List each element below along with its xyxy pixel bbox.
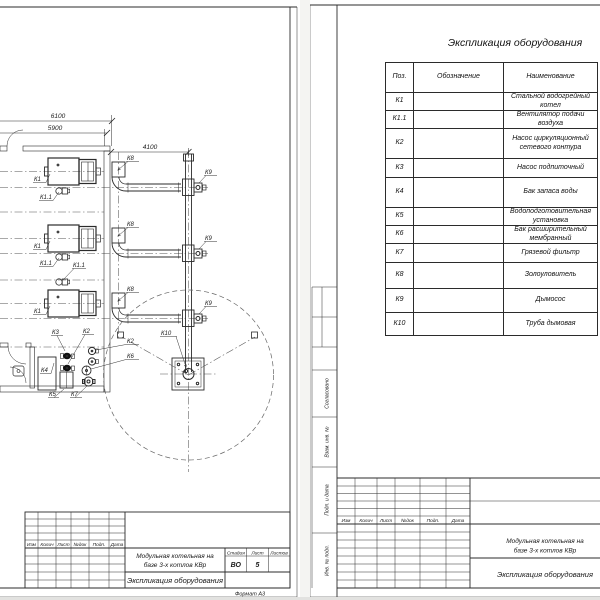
stage-label: Стадия xyxy=(227,551,245,557)
right-title-block: Изм Колич Лист №док Подп. Дата Модульная… xyxy=(337,478,600,588)
cell-designation xyxy=(414,111,504,129)
label-k6: К6 xyxy=(127,354,135,360)
cell-designation xyxy=(414,226,504,244)
table-row: К4Бак запаса воды xyxy=(386,178,598,208)
cell-designation xyxy=(414,313,504,336)
makeup-pumps-k3 xyxy=(61,353,75,371)
cell-pos: К3 xyxy=(386,159,414,178)
tb-col-ndok: №док xyxy=(401,518,415,524)
cell-name: Дымосос xyxy=(504,289,598,313)
stamp-sign-date: Подп. и дата xyxy=(325,484,331,516)
tb-col-data: Дата xyxy=(451,518,465,524)
table-row: К6Бак расширительный мембранный xyxy=(386,226,598,244)
left-sheet: 6100 5900 4100 xyxy=(0,0,300,600)
label-k1: К1 xyxy=(34,244,41,250)
cell-pos: К10 xyxy=(386,313,414,336)
cell-pos: К1 xyxy=(386,93,414,111)
label-k8: К8 xyxy=(127,156,135,162)
left-title-block: Изм Колич Лист №док Подп. Дата Модульная… xyxy=(25,512,290,598)
project-title-line2: базе 3-х котлов КВр xyxy=(514,547,577,555)
door-arc-top xyxy=(7,130,23,146)
doc-title: Экспликация оборудования xyxy=(127,576,223,585)
label-k10: К10 xyxy=(161,331,172,337)
project-title-line1: Модульная котельная на xyxy=(136,552,214,560)
label-k1: К1 xyxy=(34,177,41,183)
cell-name: Грязевой фильтр xyxy=(504,244,598,263)
table-row: К10Труба дымовая xyxy=(386,313,598,336)
cell-name: Стальной водогрейный котел xyxy=(504,93,598,111)
tb-col-podp: Подп. xyxy=(427,518,440,524)
cell-name: Золоуловитель xyxy=(504,263,598,289)
label-k1-1: К1.1 xyxy=(40,261,52,267)
equipment-room xyxy=(13,347,98,390)
right-sheet: Согласовано Взам. инв. № Подп. и дата Ин… xyxy=(310,0,600,600)
dim-flue: 4100 xyxy=(143,144,158,151)
sheet-label: Лист xyxy=(250,551,263,557)
cell-designation xyxy=(414,208,504,226)
cell-name: Бак запаса воды xyxy=(504,178,598,208)
table-row: К1.1Вентилятор подачи воздуха xyxy=(386,111,598,129)
cell-name: Вентилятор подачи воздуха xyxy=(504,111,598,129)
cell-name: Бак расширительный мембранный xyxy=(504,226,598,244)
cell-name: Труба дымовая xyxy=(504,313,598,336)
label-k8: К8 xyxy=(127,222,135,228)
label-k8: К8 xyxy=(127,287,135,293)
stage-value: ВО xyxy=(231,562,242,569)
cell-pos: К2 xyxy=(386,129,414,159)
cell-pos: К1.1 xyxy=(386,111,414,129)
cell-pos: К6 xyxy=(386,226,414,244)
label-k9: К9 xyxy=(205,170,213,176)
dim-inner: 5900 xyxy=(48,125,63,132)
door-arc-inner xyxy=(8,346,26,364)
table-row: К2Насос циркуляционный сетевого контура xyxy=(386,129,598,159)
tb-col-ndok: №док xyxy=(74,542,88,548)
table-row: К5Водоподготовительная установка xyxy=(386,208,598,226)
tb-col-kolich: Колич xyxy=(359,518,373,524)
callouts: К1 К1 К1 К1.1 К1.1 К1.1 К8 К8 К8 К9 К9 К… xyxy=(33,156,217,398)
cell-designation xyxy=(414,178,504,208)
plan-drawing: 6100 5900 4100 xyxy=(0,0,300,600)
table-row: К3Насос подпиточный xyxy=(386,159,598,178)
table-row: К1Стальной водогрейный котел xyxy=(386,93,598,111)
tb-col-list: Лист xyxy=(56,542,69,548)
col-designation: Обозначение xyxy=(414,63,504,93)
tb-col-data: Дата xyxy=(110,542,124,548)
table-row: К8Золоуловитель xyxy=(386,263,598,289)
stamp-replace-inv: Взам. инв. № xyxy=(325,426,331,458)
label-k1: К1 xyxy=(34,309,41,315)
expansion-tank-k6 xyxy=(82,366,91,375)
label-k9: К9 xyxy=(205,236,213,242)
col-pos: Поз. xyxy=(386,63,414,93)
mud-filter-k7 xyxy=(83,377,96,386)
cell-designation xyxy=(414,159,504,178)
label-k5: К5 xyxy=(49,392,57,398)
spec-title: Экспликация оборудования xyxy=(410,37,600,49)
tb-col-podp: Подп. xyxy=(93,542,106,548)
project-title-line1: Модульная котельная на xyxy=(506,537,584,545)
label-k9: К9 xyxy=(205,301,213,307)
cell-designation xyxy=(414,244,504,263)
sheets-label: Листов xyxy=(269,551,288,557)
cell-pos: К8 xyxy=(386,263,414,289)
cell-pos: К9 xyxy=(386,289,414,313)
label-k4: К4 xyxy=(41,368,49,374)
stamp-inv-orig: Инв. № подл. xyxy=(325,545,331,576)
spec-header-row: Поз. Обозначение Наименование xyxy=(386,63,598,93)
cell-designation xyxy=(414,129,504,159)
label-k2: К2 xyxy=(127,339,135,345)
cell-designation xyxy=(414,93,504,111)
sheet-value: 5 xyxy=(256,562,260,569)
cell-name: Насос подпиточный xyxy=(504,159,598,178)
cell-name: Насос циркуляционный сетевого контура xyxy=(504,129,598,159)
col-name: Наименование xyxy=(504,63,598,93)
table-row: К9Дымосос xyxy=(386,289,598,313)
boilers xyxy=(45,158,101,317)
cell-designation xyxy=(414,289,504,313)
dimensions: 6100 5900 4100 xyxy=(0,113,192,156)
cell-pos: К7 xyxy=(386,244,414,263)
cell-name: Водоподготовительная установка xyxy=(504,208,598,226)
cell-pos: К5 xyxy=(386,208,414,226)
table-row: К7Грязевой фильтр xyxy=(386,244,598,263)
tb-col-izm: Изм xyxy=(342,518,352,524)
doc-title: Экспликация оборудования xyxy=(497,570,593,579)
label-k3: К3 xyxy=(52,330,60,336)
axis-centerlines xyxy=(0,150,217,472)
tb-col-kolich: Колич xyxy=(40,542,54,548)
dim-outer: 6100 xyxy=(51,113,66,120)
label-k1-1: К1.1 xyxy=(73,263,85,269)
stamp-agreed: Согласовано xyxy=(325,378,331,409)
side-stamp: Согласовано Взам. инв. № Подп. и дата Ин… xyxy=(312,287,337,588)
project-title-line2: базе 3-х котлов КВр xyxy=(144,561,207,569)
label-k1-1: К1.1 xyxy=(40,195,52,201)
cell-pos: К4 xyxy=(386,178,414,208)
label-k2: К2 xyxy=(83,329,91,335)
cell-designation xyxy=(414,263,504,289)
spec-table: Поз. Обозначение Наименование К1Стальной… xyxy=(385,62,598,336)
tb-col-izm: Изм xyxy=(27,542,37,548)
tb-col-list: Лист xyxy=(379,518,392,524)
